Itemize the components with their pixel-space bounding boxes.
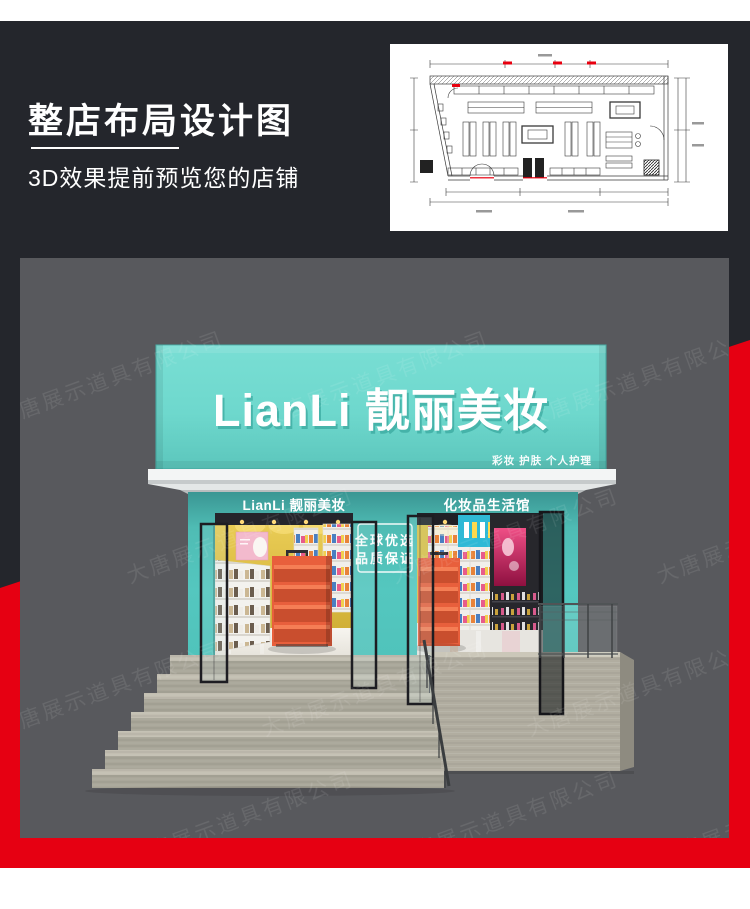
right-door-header: 化妆品生活馆	[444, 497, 531, 513]
canopy-ledge	[148, 469, 616, 494]
title-underline	[31, 147, 179, 149]
storefront-render: LianLi 靓丽美妆 LianLi 靓丽美妆 彩妆 护肤 个人护理	[20, 258, 729, 838]
floorplan-drawing	[390, 44, 728, 231]
glass-balustrade	[538, 604, 618, 658]
page-root: 整店布局设计图 3D效果提前预览您的店铺	[0, 0, 750, 909]
poster-section: LianLi 靓丽美妆 LianLi 靓丽美妆 彩妆 护肤 个人护理	[0, 258, 750, 909]
hero-section: 整店布局设计图 3D效果提前预览您的店铺	[0, 21, 750, 258]
sign-tagline: 彩妆 护肤 个人护理	[491, 454, 592, 467]
page-title: 整店布局设计图	[28, 93, 294, 144]
plan-fixtures	[438, 86, 664, 176]
entrance-stairs	[85, 655, 455, 796]
left-door-interior	[215, 513, 353, 655]
sign-text: LianLi 靓丽美妆	[213, 385, 549, 436]
sign-board: LianLi 靓丽美妆 LianLi 靓丽美妆 彩妆 护肤 个人护理	[156, 345, 606, 469]
left-door-header: LianLi 靓丽美妆	[243, 497, 346, 513]
floorplan-card	[390, 44, 728, 231]
storefront-render-panel: LianLi 靓丽美妆 LianLi 靓丽美妆 彩妆 护肤 个人护理	[20, 258, 729, 838]
orange-gondola-left	[272, 550, 332, 647]
page-subtitle: 3D效果提前预览您的店铺	[28, 159, 299, 193]
stone-platform	[426, 652, 634, 774]
bottom-white-strip	[0, 868, 750, 909]
top-white-strip	[0, 0, 750, 21]
